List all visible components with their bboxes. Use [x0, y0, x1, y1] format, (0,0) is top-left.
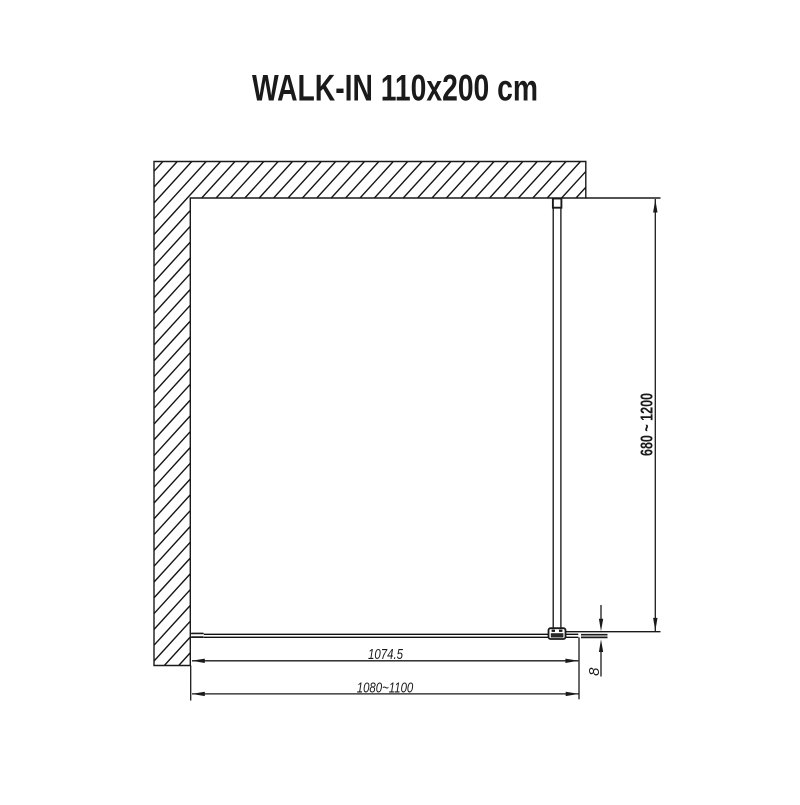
svg-text:WALK-IN 110x200 cm: WALK-IN 110x200 cm: [252, 68, 538, 109]
svg-text:1074.5: 1074.5: [368, 647, 404, 663]
svg-text:8: 8: [586, 667, 603, 676]
svg-text:680 ~ 1200: 680 ~ 1200: [636, 393, 656, 456]
svg-text:1080~1100: 1080~1100: [357, 680, 414, 696]
